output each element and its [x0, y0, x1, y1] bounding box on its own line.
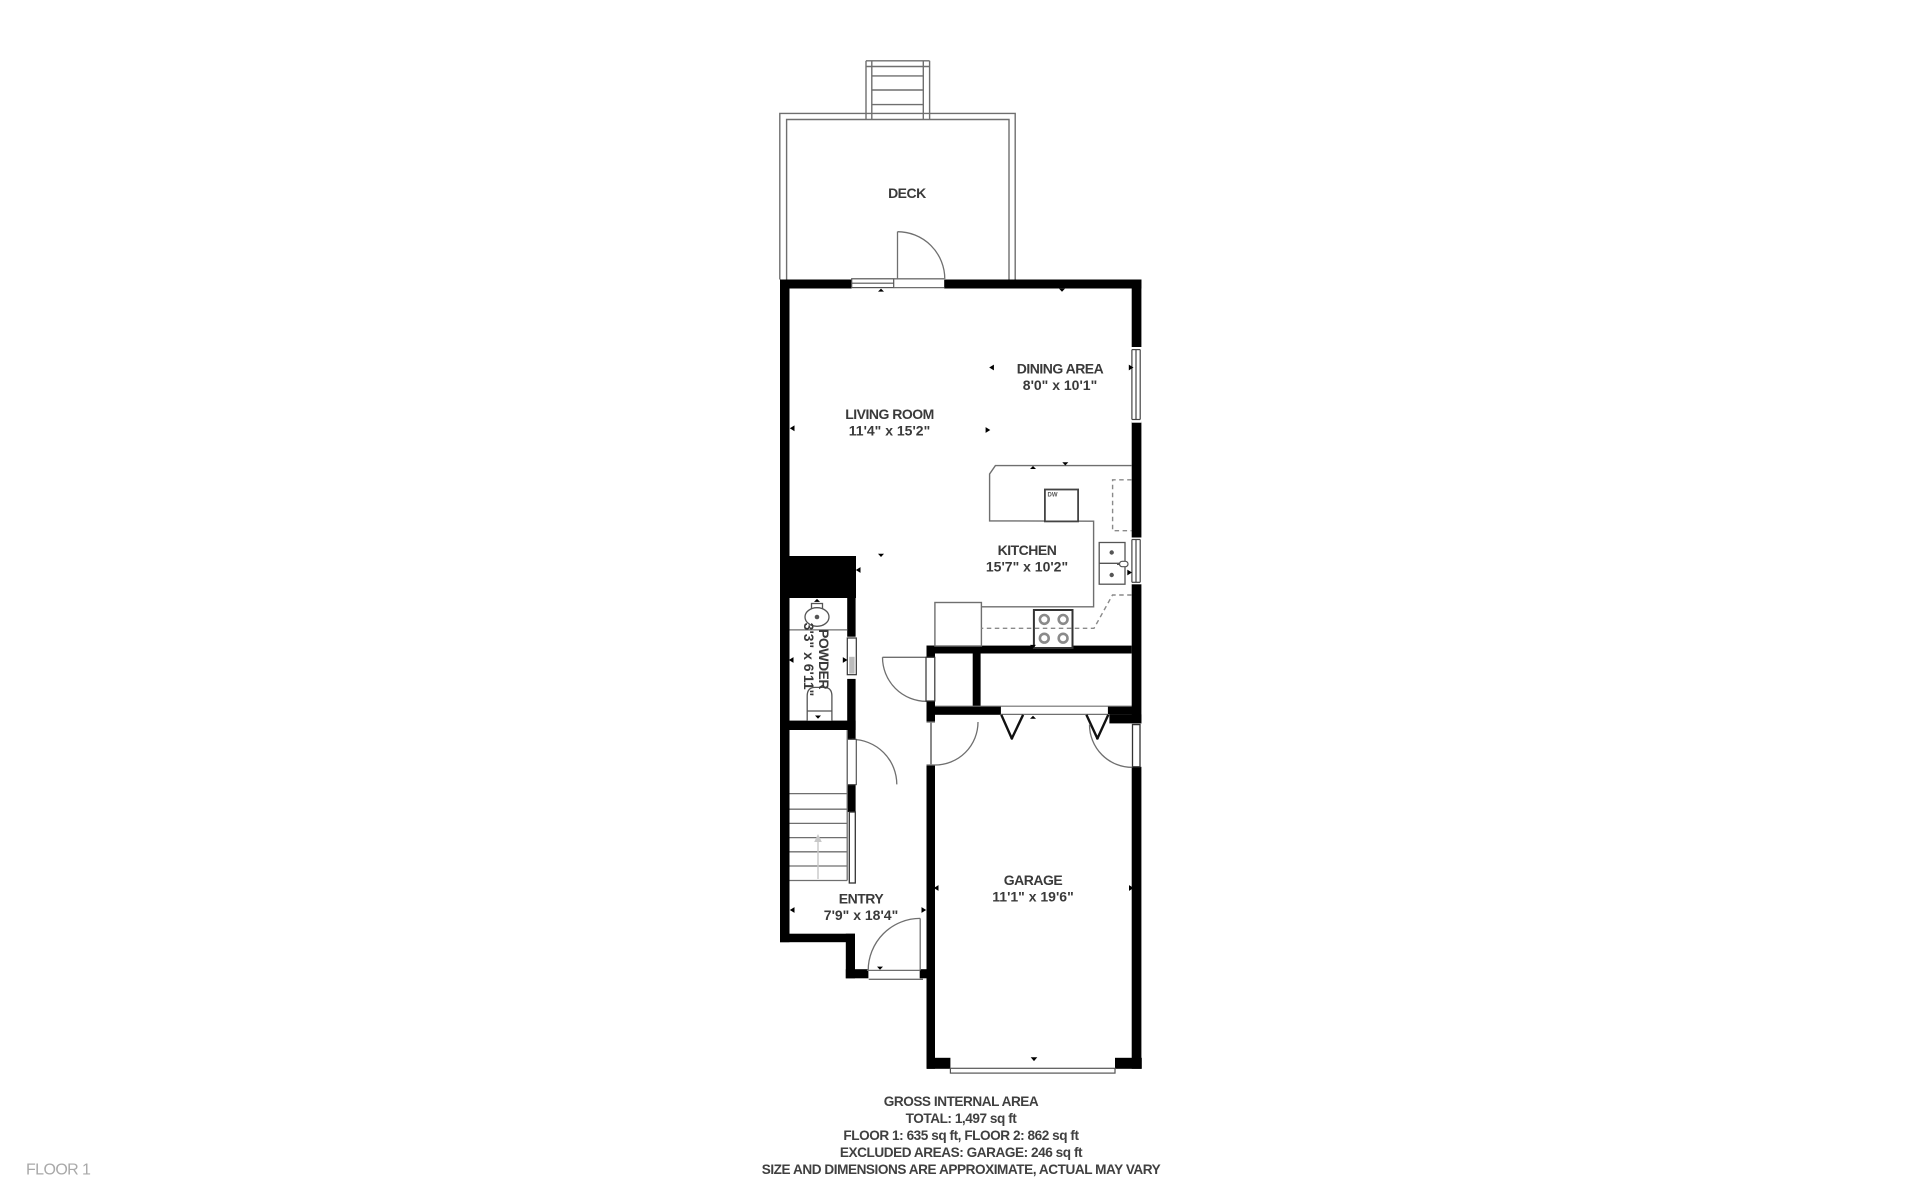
- svg-text:TOTAL: 1,497 sq ft: TOTAL: 1,497 sq ft: [906, 1111, 1018, 1126]
- svg-text:GARAGE: GARAGE: [1004, 872, 1063, 888]
- svg-text:LIVING ROOM: LIVING ROOM: [845, 406, 934, 422]
- svg-text:GROSS INTERNAL AREA: GROSS INTERNAL AREA: [884, 1094, 1039, 1109]
- svg-text:11'1" x 19'6": 11'1" x 19'6": [992, 889, 1073, 905]
- svg-text:POWDER: POWDER: [816, 629, 832, 689]
- svg-text:11'4" x 15'2": 11'4" x 15'2": [849, 423, 930, 439]
- svg-text:SIZE AND DIMENSIONS ARE APPROX: SIZE AND DIMENSIONS ARE APPROXIMATE, ACT…: [762, 1162, 1161, 1177]
- svg-text:FLOOR 1: 635 sq ft, FLOOR 2: 8: FLOOR 1: 635 sq ft, FLOOR 2: 862 sq ft: [843, 1128, 1079, 1143]
- svg-text:7'9" x 18'4": 7'9" x 18'4": [824, 907, 898, 923]
- svg-text:ENTRY: ENTRY: [839, 891, 885, 907]
- svg-text:FLOOR 1: FLOOR 1: [26, 1161, 91, 1178]
- svg-text:15'7" x 10'2": 15'7" x 10'2": [986, 559, 1068, 575]
- svg-text:8'0" x 10'1": 8'0" x 10'1": [1023, 377, 1097, 393]
- svg-text:DINING AREA: DINING AREA: [1017, 360, 1104, 376]
- svg-text:DW: DW: [1048, 493, 1058, 499]
- svg-text:EXCLUDED AREAS: GARAGE: 246 sq: EXCLUDED AREAS: GARAGE: 246 sq ft: [840, 1145, 1083, 1160]
- svg-text:DECK: DECK: [888, 185, 926, 201]
- svg-text:KITCHEN: KITCHEN: [998, 542, 1057, 558]
- svg-text:3'3" x 6'11": 3'3" x 6'11": [801, 623, 817, 697]
